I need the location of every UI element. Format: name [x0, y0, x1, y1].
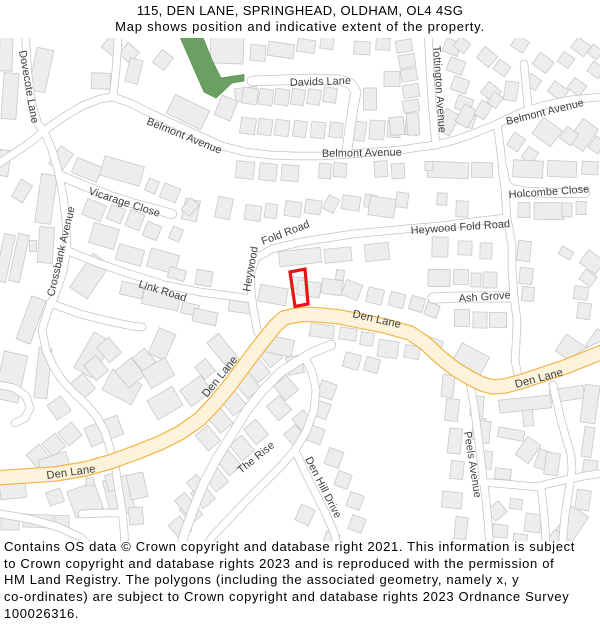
svg-text:Belmont Avenue: Belmont Avenue	[322, 147, 402, 160]
svg-text:Davids Lane: Davids Lane	[290, 75, 352, 89]
